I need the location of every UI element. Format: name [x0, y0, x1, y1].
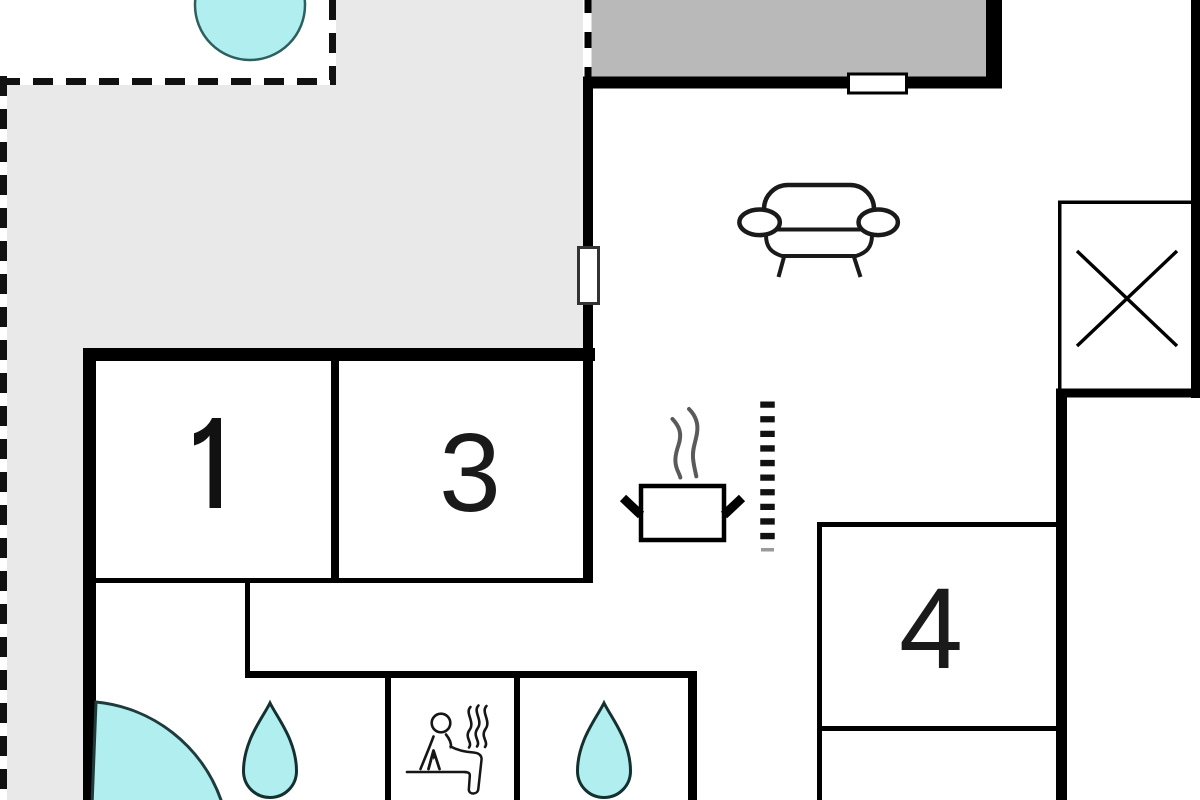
svg-text:4: 4 — [899, 565, 963, 693]
svg-text:3: 3 — [439, 411, 501, 535]
